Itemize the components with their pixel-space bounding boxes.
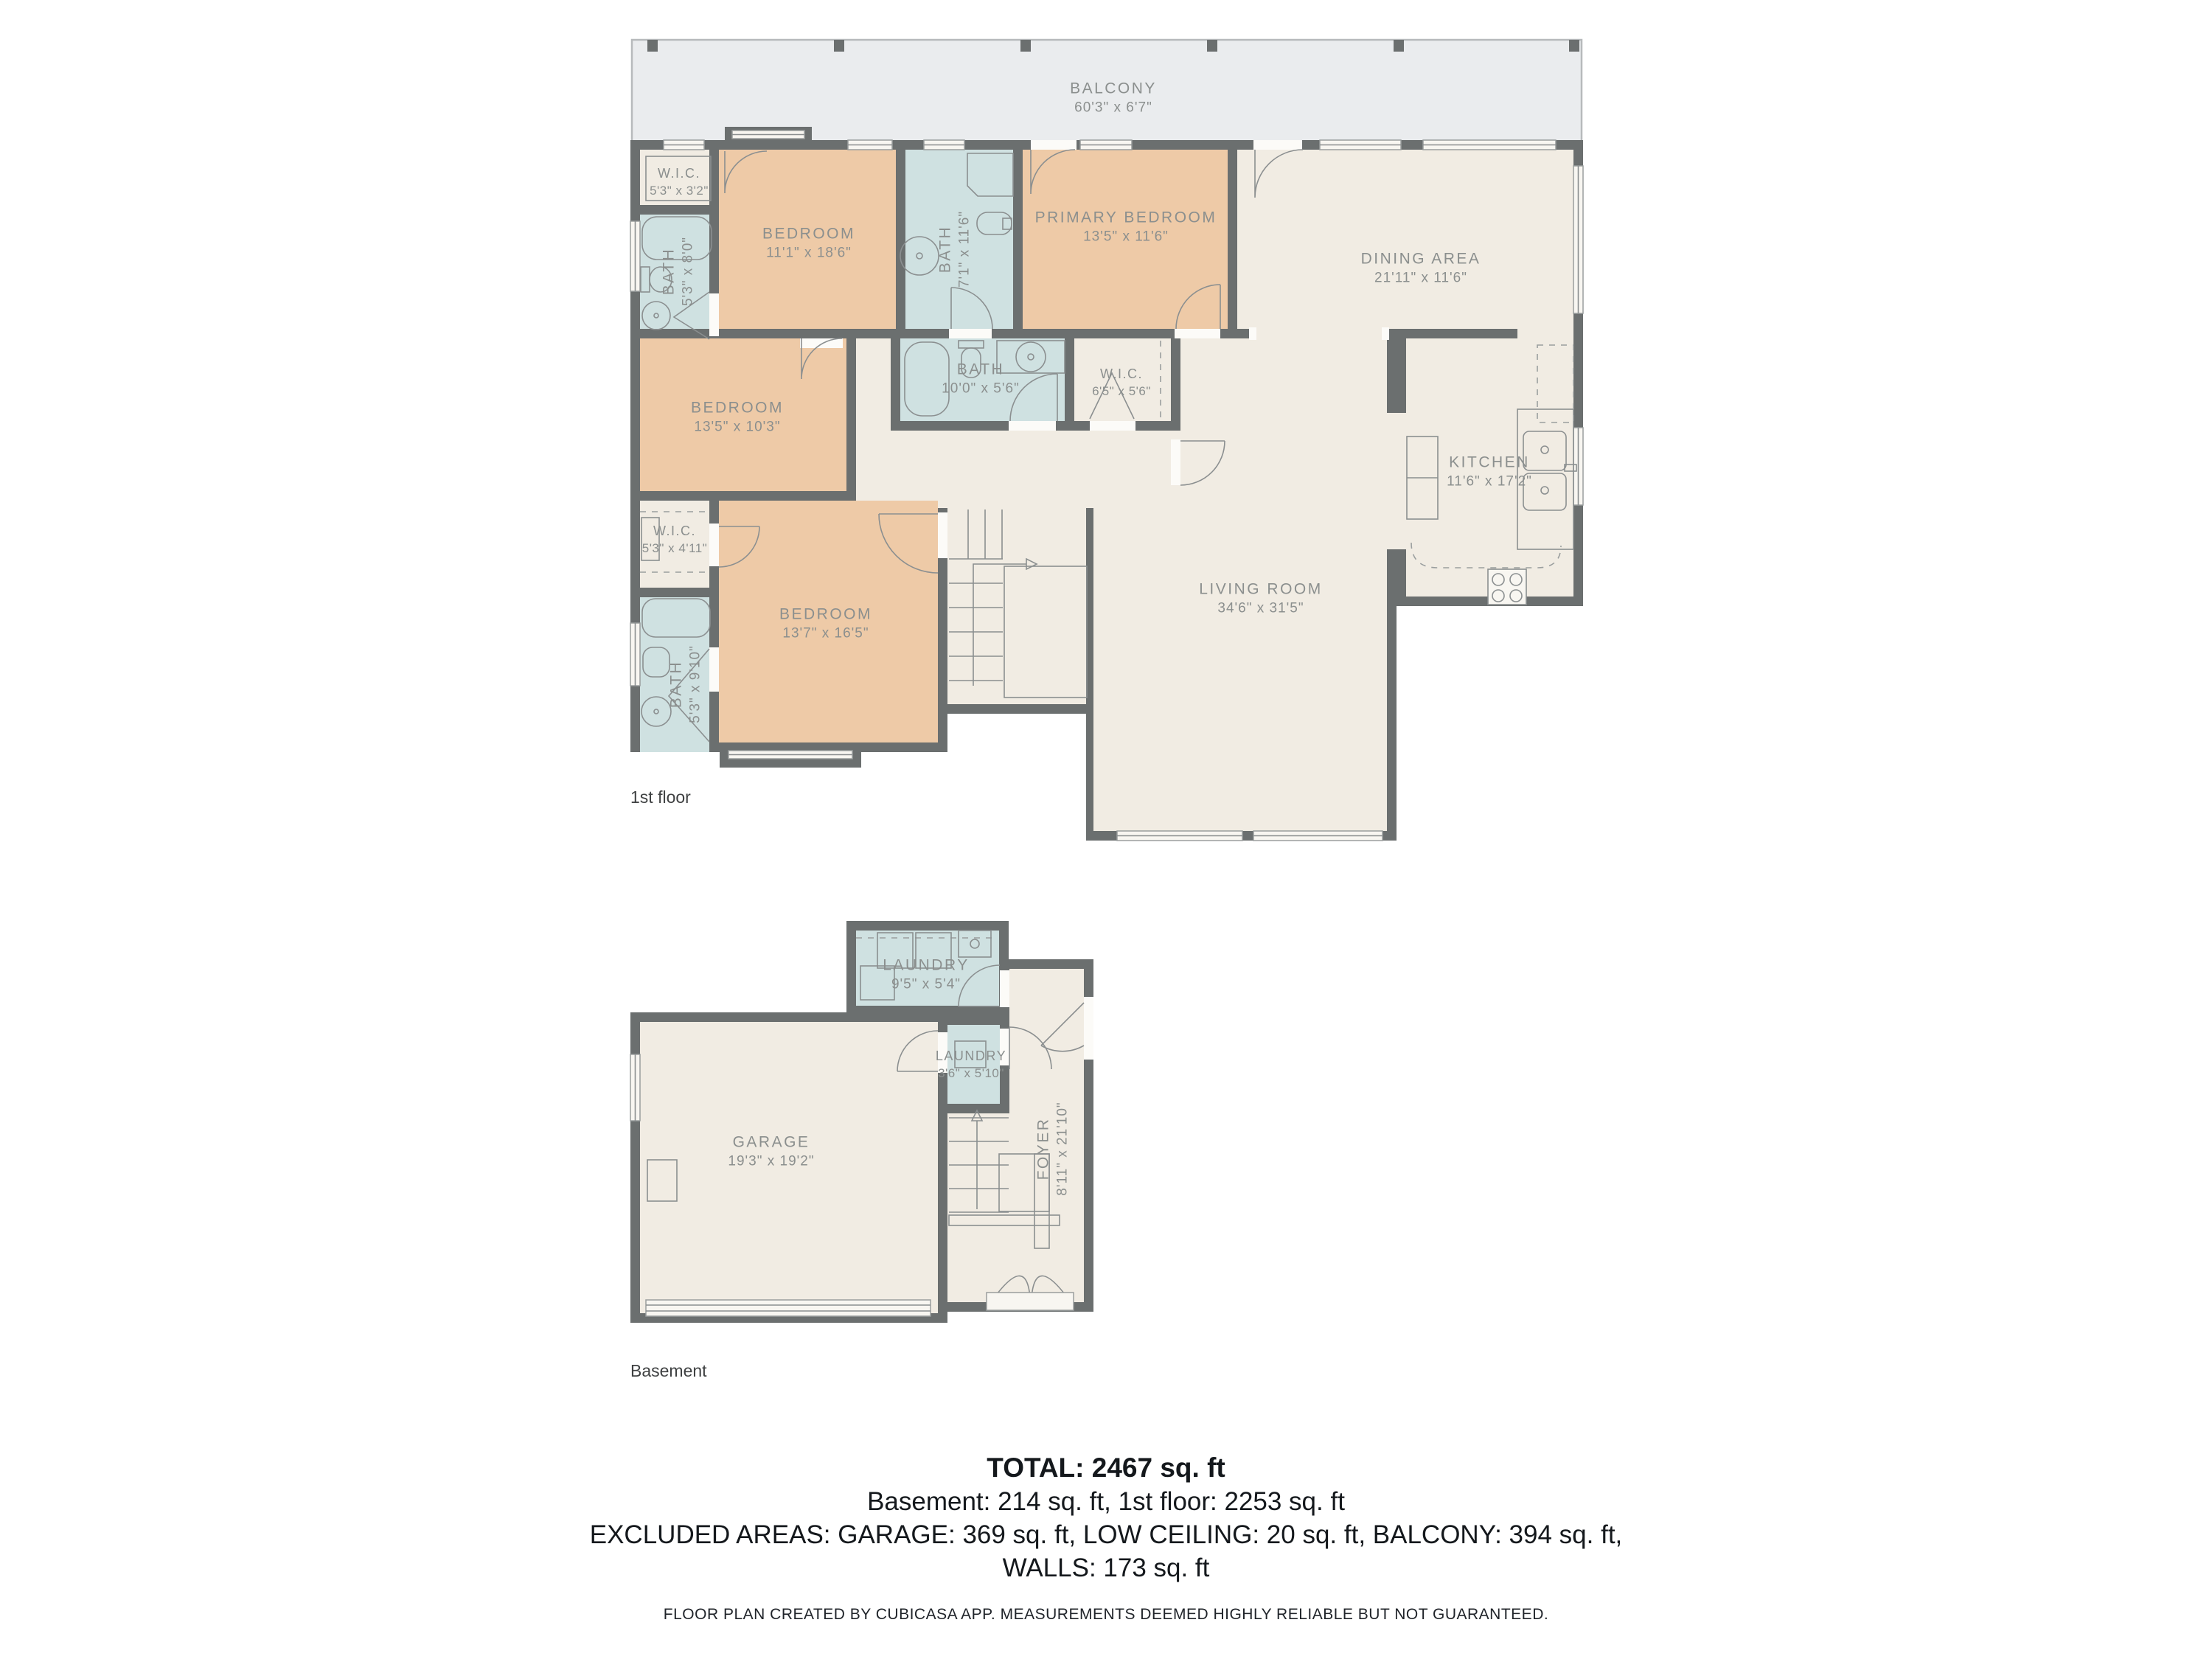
stair-hall-fill [947, 431, 1086, 704]
balcony-post [1020, 40, 1031, 52]
balcony-post [647, 40, 658, 52]
room-label-primary-bedroom: PRIMARY BEDROOM 13'5" x 11'6" [1035, 209, 1217, 246]
cased-opening [1255, 329, 1383, 338]
room-label-foyer: FOYER 8'11" x 21'10" [1035, 1102, 1071, 1195]
room-label-wic: W.I.C. 5'3" x 4'11" [642, 524, 708, 556]
room-label-bedroom: BEDROOM 13'5" x 10'3" [691, 400, 784, 436]
room-label-laundry: LAUNDRY 9'5" x 5'4" [883, 957, 969, 993]
entry-door-sill [987, 1293, 1074, 1310]
room-label-garage: GARAGE 19'3" x 19'2" [728, 1134, 814, 1170]
garage-door [646, 1300, 931, 1316]
area-summary: TOTAL: 2467 sq. ft Basement: 214 sq. ft,… [0, 1451, 2212, 1585]
room-label-wic: W.I.C. 5'3" x 3'2" [650, 166, 709, 198]
balcony-post [1569, 40, 1579, 52]
room-label-bath: BATH 5'3" x 8'0" [661, 237, 697, 306]
room-fill-living [1093, 508, 1387, 831]
summary-walls: WALLS: 173 sq. ft [0, 1551, 2212, 1585]
room-label-bath: BATH 7'1" x 11'6" [937, 211, 973, 288]
disclaimer-text: FLOOR PLAN CREATED BY CUBICASA APP. MEAS… [0, 1606, 2212, 1624]
room-label-living-room: LIVING ROOM 34'6" x 31'5" [1199, 581, 1323, 617]
room-label-bedroom: BEDROOM 11'1" x 18'6" [762, 226, 855, 262]
room-label-wic: W.I.C. 6'5" x 5'6" [1092, 366, 1151, 399]
floorplan-drawing [0, 0, 2212, 1659]
floor1-tag: 1st floor [630, 787, 691, 807]
kitchen-opening [1387, 413, 1406, 549]
room-label-kitchen: KITCHEN 11'6" x 17'2" [1447, 454, 1532, 490]
summary-excluded: EXCLUDED AREAS: GARAGE: 369 sq. ft, LOW … [0, 1518, 2212, 1551]
room-fill-dining [1237, 150, 1573, 329]
room-label-dining-area: DINING AREA 21'11" x 11'6" [1361, 251, 1481, 287]
room-label-laundry: LAUNDRY 3'6" x 5'10" [936, 1048, 1006, 1081]
floorplan-page: BALCONY 60'3" x 6'7" W.I.C. 5'3" x 3'2" … [0, 0, 2212, 1659]
balcony-post [1207, 40, 1217, 52]
room-label-bath: BATH 10'0" x 5'6" [942, 361, 1020, 397]
opening-jamb [1382, 327, 1389, 340]
room-label-balcony: BALCONY 60'3" x 6'7" [1070, 80, 1157, 116]
balcony-post [1394, 40, 1404, 52]
basement-rooms [640, 931, 1084, 1313]
room-label-bedroom: BEDROOM 13'7" x 16'5" [779, 606, 872, 642]
balcony-post [834, 40, 844, 52]
summary-floors: Basement: 214 sq. ft, 1st floor: 2253 sq… [0, 1485, 2212, 1518]
basement-tag: Basement [630, 1361, 707, 1381]
cased-opening [1517, 329, 1573, 338]
summary-total: TOTAL: 2467 sq. ft [0, 1451, 2212, 1485]
opening-jamb [1249, 327, 1256, 340]
room-label-bath: BATH 5'3" x 9'10" [668, 645, 704, 723]
